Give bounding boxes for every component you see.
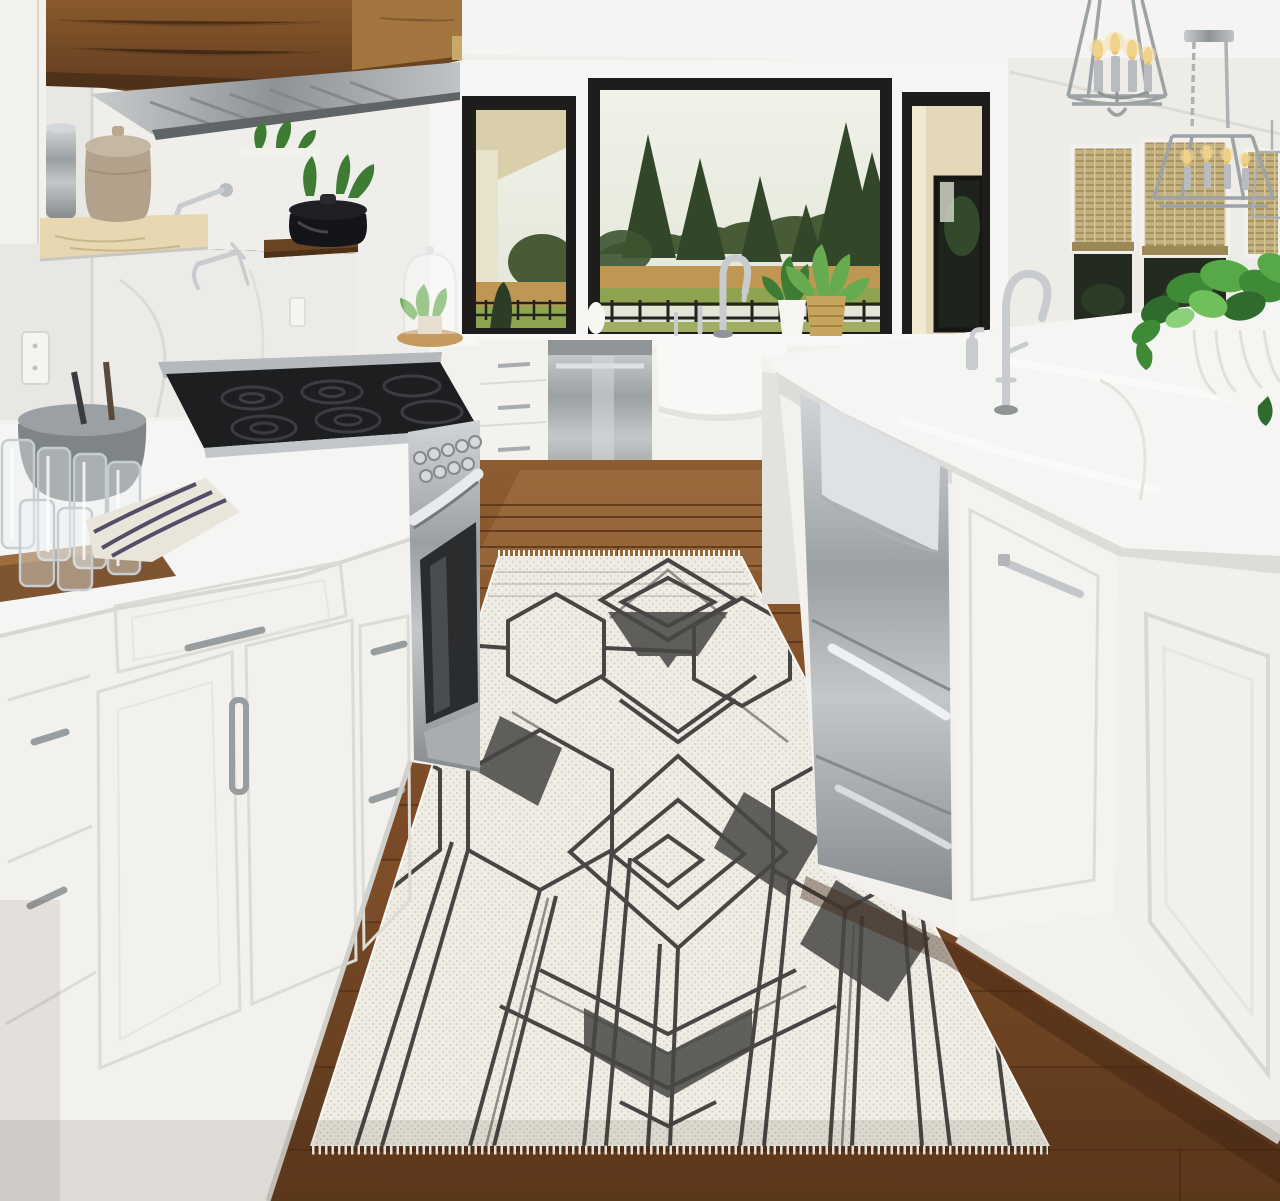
ceramic-crock — [85, 126, 151, 222]
prep-faucet-base — [994, 405, 1018, 415]
cloche-glass — [404, 254, 456, 334]
rod — [1226, 42, 1228, 128]
pull-backplate — [998, 554, 1010, 566]
window-right — [902, 92, 990, 338]
shade-bottom-bar — [1142, 246, 1228, 255]
small-white-vase — [587, 302, 605, 334]
vignette-left — [0, 900, 60, 1201]
window-lawn — [476, 306, 566, 330]
pane-foliage — [1081, 284, 1125, 316]
wall-outlet — [22, 332, 49, 384]
island-stainless-front — [800, 394, 952, 900]
dishwasher-control-strip — [548, 340, 652, 355]
house-shadow — [912, 106, 926, 334]
window-center — [588, 78, 902, 344]
vignette-bottom — [0, 1120, 1280, 1201]
reflected-sky — [940, 182, 954, 222]
kitchen-scene — [0, 0, 1280, 1201]
window-tree — [508, 234, 576, 290]
upper-left-cabinet — [0, 0, 46, 244]
bamboo-shade — [1072, 146, 1134, 250]
shade-bottom-bar — [1072, 242, 1134, 251]
white-pot — [778, 300, 806, 334]
stainless-canister — [46, 123, 76, 218]
brass-strip — [452, 36, 462, 60]
herb-ledge — [240, 148, 322, 156]
faucet-base — [713, 330, 733, 338]
ceiling-canopy — [1184, 30, 1234, 42]
window-left — [462, 96, 576, 334]
range-oven — [408, 420, 481, 772]
kitchen-photo — [0, 0, 1280, 1201]
wall-outlet-small — [290, 298, 305, 326]
